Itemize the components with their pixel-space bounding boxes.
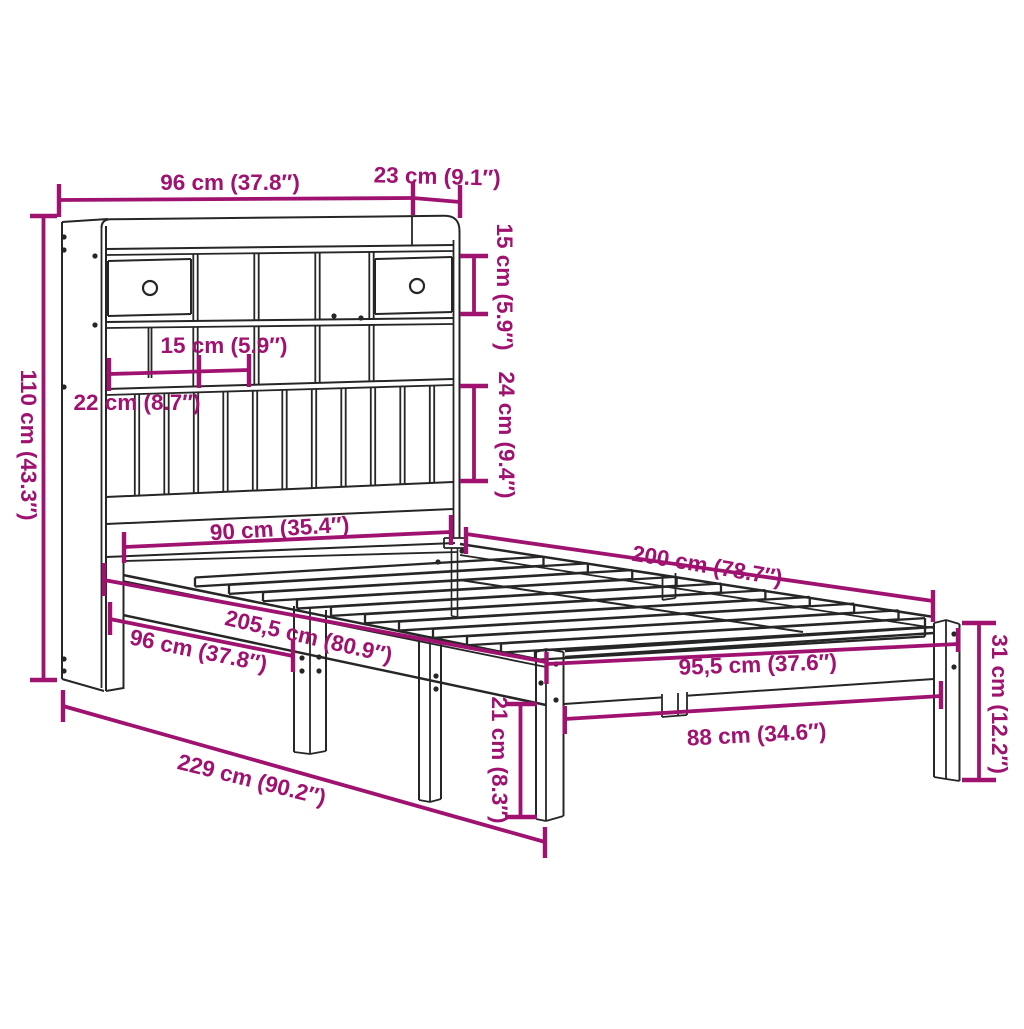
svg-text:21 cm (8.3″): 21 cm (8.3″) — [487, 696, 512, 823]
svg-text:15 cm (5.9″): 15 cm (5.9″) — [492, 223, 517, 350]
svg-text:23 cm (9.1″): 23 cm (9.1″) — [373, 162, 501, 190]
svg-text:24 cm (9.4″): 24 cm (9.4″) — [494, 371, 519, 498]
svg-text:22 cm (8.7″): 22 cm (8.7″) — [73, 390, 200, 415]
svg-text:110 cm (43.3″): 110 cm (43.3″) — [16, 370, 41, 521]
svg-text:31 cm (12.2″): 31 cm (12.2″) — [987, 634, 1012, 774]
svg-text:96 cm (37.8″): 96 cm (37.8″) — [160, 170, 300, 195]
svg-text:15 cm (5.9″): 15 cm (5.9″) — [160, 333, 287, 358]
